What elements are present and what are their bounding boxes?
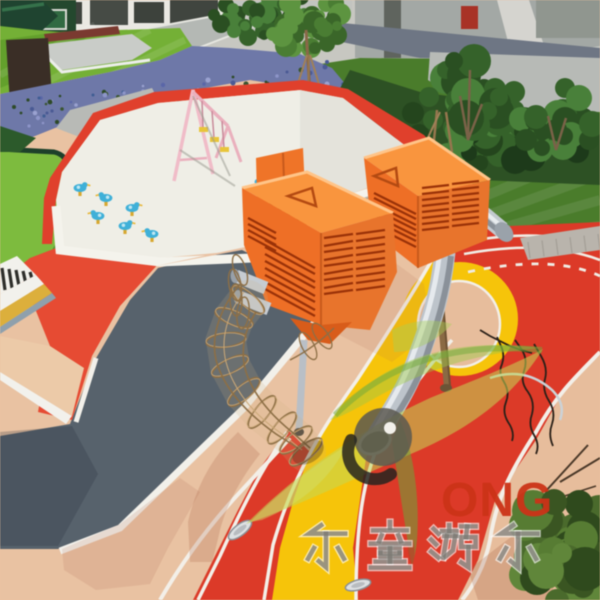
svg-text:ONG: ONG xyxy=(441,474,553,527)
